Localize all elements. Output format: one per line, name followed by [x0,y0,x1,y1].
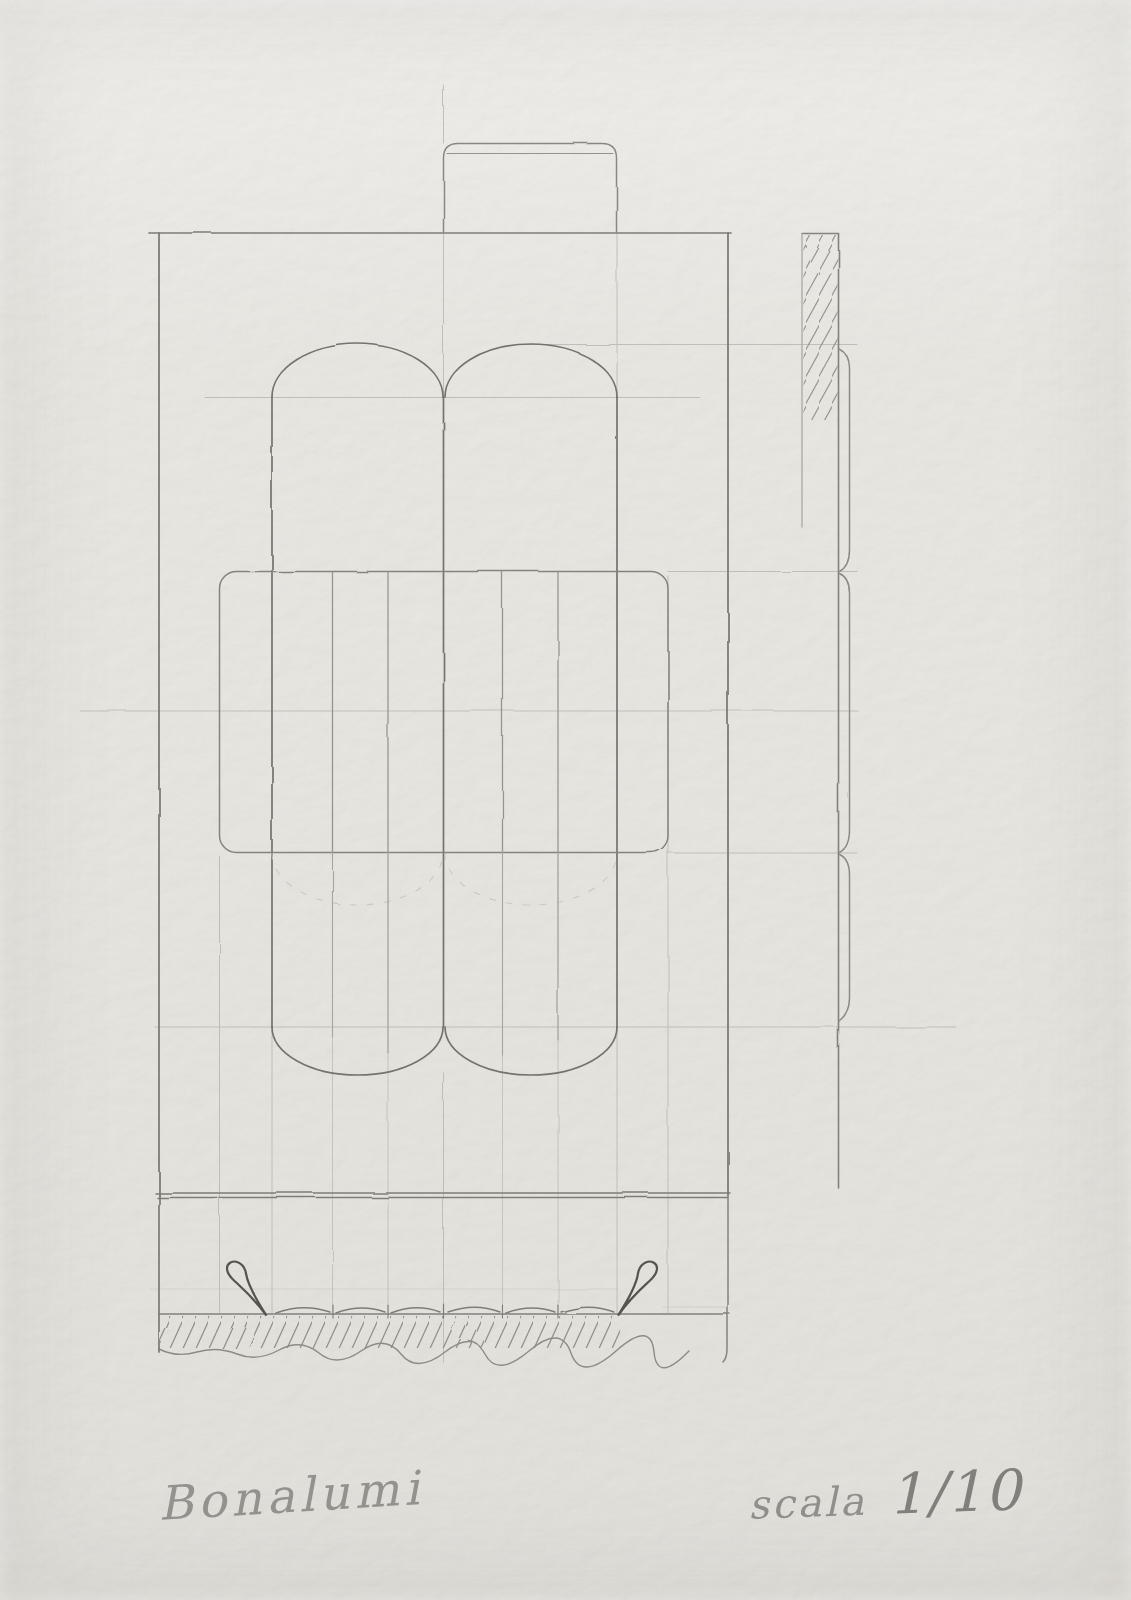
paper-grain [0,0,1131,1600]
scale-annotation: scala 1/10 [747,1457,1023,1532]
scale-label: scala [747,1478,867,1528]
side-strip-hatching [804,235,838,420]
technical-drawing [0,0,1131,1600]
scale-value: 1/10 [887,1457,1023,1527]
section-hatching [160,1316,620,1348]
paper-sheet: Bonalumi scala 1/10 [0,0,1131,1600]
